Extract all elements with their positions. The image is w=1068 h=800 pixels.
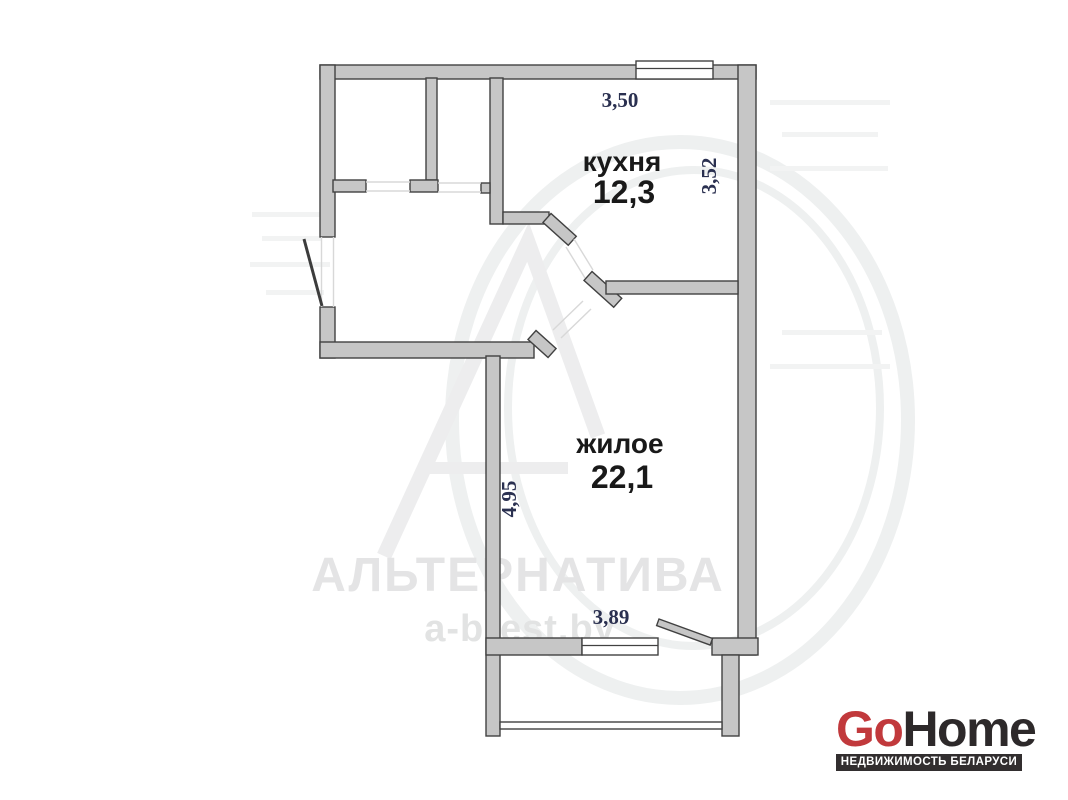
wall-stub-room-b bbox=[481, 183, 490, 193]
watermark-streak bbox=[252, 212, 326, 217]
threshold-living-doorway bbox=[561, 309, 591, 338]
wall-foot-room-a bbox=[410, 180, 438, 192]
wall-left-exterior-upper bbox=[320, 65, 335, 237]
wall-stub-room-a bbox=[333, 180, 366, 192]
wall-kitchen-turn bbox=[503, 212, 549, 224]
wall-hallway-bottom bbox=[320, 342, 534, 358]
watermark-streak bbox=[250, 262, 330, 267]
wall-kitchen-left bbox=[490, 78, 503, 224]
balcony-railing bbox=[500, 722, 722, 729]
gohome-logo-tagline: НЕДВИЖИМОСТЬ БЕЛАРУСИ bbox=[836, 754, 1022, 771]
wall-living-bottom-right bbox=[712, 638, 758, 655]
wall-right-exterior bbox=[738, 65, 756, 655]
watermark-streak bbox=[266, 290, 324, 295]
wall-balcony-right bbox=[722, 655, 739, 736]
dimension-kitchen-depth: 3,52 bbox=[697, 158, 721, 195]
watermark-streak bbox=[770, 166, 888, 171]
room-area-living: 22,1 bbox=[591, 459, 653, 495]
dimension-kitchen-width: 3,50 bbox=[602, 88, 639, 112]
room-area-kitchen: 12,3 bbox=[593, 174, 655, 210]
watermark-streak bbox=[262, 236, 322, 241]
gohome-logo: GoHome НЕДВИЖИМОСТЬ БЕЛАРУСИ bbox=[836, 706, 1024, 771]
gohome-logo-home: Home bbox=[902, 701, 1035, 757]
watermark-company-text: АЛЬТЕРНАТИВА bbox=[311, 549, 725, 602]
wall-divider-room-a bbox=[426, 78, 437, 180]
room-label-living: жилое bbox=[575, 428, 663, 459]
gohome-logo-go: Go bbox=[836, 701, 902, 757]
watermark-streak bbox=[782, 330, 882, 335]
floor-plan: АЛЬТЕРНАТИВА a-brest.by bbox=[0, 0, 1068, 800]
wall-living-bottom-left bbox=[486, 638, 582, 655]
entrance-door-leaf bbox=[304, 239, 322, 306]
window-living bbox=[582, 638, 658, 655]
watermark-streak bbox=[770, 100, 890, 105]
window-kitchen bbox=[636, 61, 713, 79]
gohome-logo-text: GoHome bbox=[836, 706, 1024, 752]
watermark-streak bbox=[782, 132, 878, 137]
watermark-streak bbox=[770, 364, 890, 369]
dimension-living-width: 3,89 bbox=[593, 605, 630, 629]
wall-living-left bbox=[486, 356, 500, 736]
floor-plan-page: АЛЬТЕРНАТИВА a-brest.by bbox=[0, 0, 1068, 800]
wall-kitchen-living-divider bbox=[606, 281, 738, 294]
room-label-kitchen: кухня bbox=[583, 146, 662, 177]
dimension-living-depth: 4,95 bbox=[497, 481, 521, 518]
